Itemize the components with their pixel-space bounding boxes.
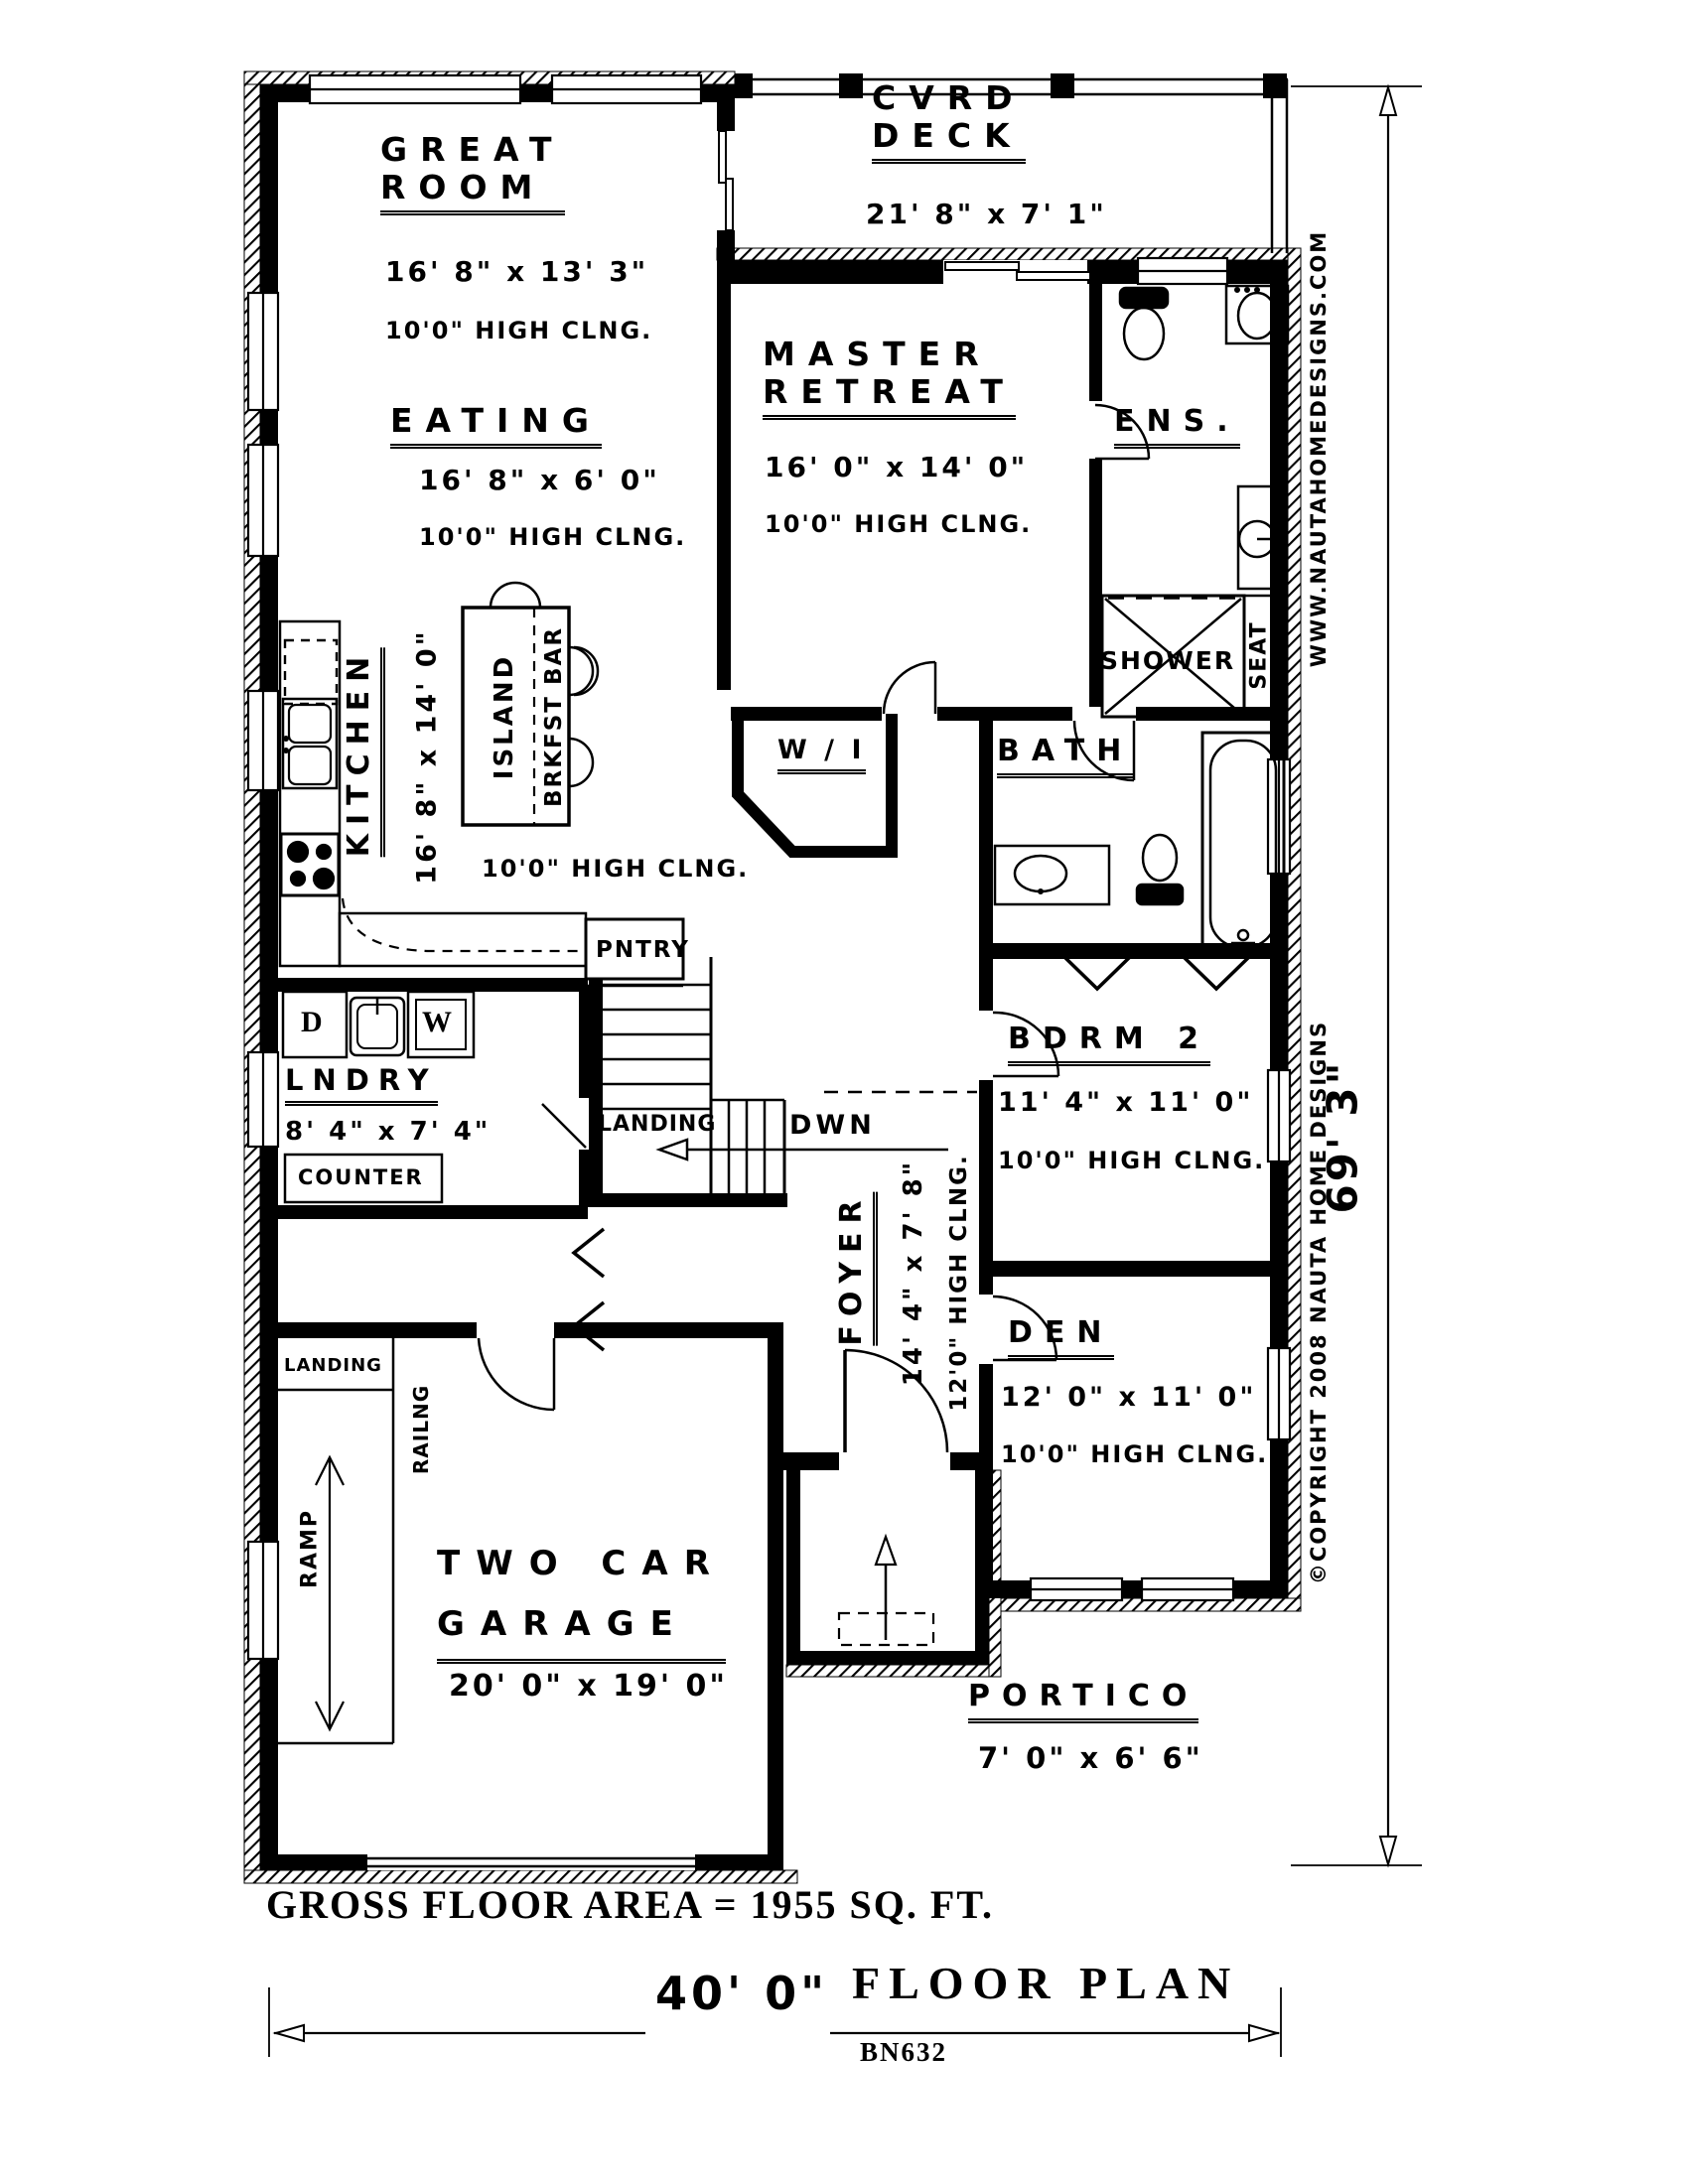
foyer-dims: 14' 4" x 7' 8" [899, 1160, 928, 1386]
pantry-label: PNTRY [596, 937, 690, 963]
hall-closet-door-1 [574, 1229, 604, 1277]
stairs [603, 957, 948, 1193]
bdrm2-ceiling: 10'0" HIGH CLNG. [998, 1148, 1265, 1175]
garage-dims: 20' 0" x 19' 0" [449, 1670, 728, 1705]
front-door [845, 1350, 947, 1452]
cvrd-deck-name-2: DECK [872, 117, 1026, 155]
shower-seat-label: SEAT [1247, 620, 1272, 689]
laundry-dims: 8' 4" x 7' 4" [285, 1118, 491, 1148]
stairs-landing-label: LANDING [598, 1112, 716, 1137]
den-ceiling: 10'0" HIGH CLNG. [1001, 1441, 1268, 1469]
plan-number: BN632 [860, 2037, 947, 2068]
master-dims: 16' 0" x 14' 0" [765, 452, 1028, 483]
gross-floor-area: GROSS FLOOR AREA = 1955 SQ. FT. [266, 1882, 994, 1928]
bdrm2-closet-door-1 [1062, 955, 1132, 989]
great-room-ceiling: 10'0" HIGH CLNG. [385, 318, 652, 345]
bdrm2-closet-door-2 [1182, 955, 1251, 989]
great-room-label: GREAT ROOM [380, 131, 565, 215]
bath-label: BATH [997, 735, 1133, 778]
great-room-dims: 16' 8" x 13' 3" [385, 256, 648, 288]
plan-title: FLOOR PLAN [852, 1958, 1239, 2010]
island-label: ISLAND [490, 654, 519, 779]
bath-vanity [995, 846, 1109, 904]
eating-dims: 16' 8" x 6' 0" [419, 465, 660, 496]
portico-details [839, 1537, 933, 1645]
website-text: WWW.NAUTAHOMEDESIGNS.COM [1307, 230, 1331, 667]
kitchen-stove [281, 834, 339, 895]
eating-label: EATING [390, 402, 602, 449]
bdrm2-label: BDRM 2 [1008, 1023, 1210, 1066]
width-dimension-text: 40' 0" [655, 1968, 828, 2020]
portico-dims: 7' 0" x 6' 6" [978, 1742, 1203, 1775]
kitchen-fridge [285, 640, 337, 704]
laundry-door [542, 1104, 586, 1148]
bdrm2-dims: 11' 4" x 11' 0" [998, 1087, 1253, 1118]
garage-name-1: TWO CAR [437, 1534, 726, 1594]
den-label: DEN [1008, 1316, 1114, 1360]
cvrd-deck-label: CVRD DECK [872, 79, 1026, 164]
floor-plan-sheet: GREAT ROOM 16' 8" x 13' 3" 10'0" HIGH CL… [0, 0, 1688, 2184]
great-room-deck-door [717, 131, 735, 230]
master-name-1: MASTER [763, 336, 1016, 373]
master-name-2: RETREAT [763, 373, 1016, 411]
washer-label: W [422, 1006, 452, 1040]
kitchen-sink [283, 699, 337, 788]
laundry-label: LNDRY [285, 1064, 438, 1106]
brkfst-bar-label: BRKFST BAR [541, 626, 567, 807]
kitchen-island [463, 583, 598, 825]
garage-ramp-landing [278, 1338, 393, 1743]
down-arrow [659, 1140, 948, 1160]
garage-label: TWO CAR GARAGE [437, 1534, 726, 1664]
kitchen-label: KITCHEN [342, 648, 385, 858]
kitchen-dims: 16' 8" x 14' 0" [412, 628, 443, 884]
garage-name-2: GARAGE [437, 1594, 726, 1655]
dryer-label: D [301, 1006, 323, 1040]
floor-plan-drawing [0, 0, 1688, 2184]
garage-landing-label: LANDING [284, 1356, 382, 1377]
master-retreat-label: MASTER RETREAT [763, 336, 1016, 420]
master-patio-door [943, 260, 1090, 284]
eating-ceiling: 10'0" HIGH CLNG. [419, 524, 686, 552]
den-dims: 12' 0" x 11' 0" [1001, 1382, 1256, 1413]
ramp-arrow [316, 1457, 344, 1729]
garage-man-door [479, 1338, 554, 1410]
foyer-ceiling: 12'0" HIGH CLNG. [946, 1154, 972, 1411]
cvrd-deck-name-1: CVRD [872, 79, 1026, 117]
bath-toilet [1137, 835, 1183, 904]
ens-toilet [1120, 288, 1168, 359]
foyer-label: FOYER [834, 1191, 878, 1345]
ens-label: ENS. [1114, 405, 1240, 449]
laundry-counter-label: COUNTER [298, 1165, 424, 1189]
master-ceiling: 10'0" HIGH CLNG. [765, 511, 1032, 539]
walkin-label: W / I [777, 735, 866, 774]
master-door [884, 662, 935, 714]
stairs-down-label: DWN [789, 1110, 876, 1141]
kitchen-ceiling: 10'0" HIGH CLNG. [482, 856, 749, 884]
great-room-name-2: ROOM [380, 169, 565, 206]
portico-label: PORTICO [968, 1680, 1198, 1723]
cvrd-deck-dims: 21' 8" x 7' 1" [866, 199, 1107, 230]
shower-label: SHOWER [1100, 647, 1235, 676]
copyright-text: ©COPYRIGHT 2008 NAUTA HOME DESIGNS [1307, 1021, 1331, 1584]
top-wall-windows [310, 75, 701, 103]
great-room-name-1: GREAT [380, 131, 565, 169]
garage-railing-label: RAILNG [409, 1385, 433, 1474]
garage-ramp-label: RAMP [298, 1509, 323, 1588]
